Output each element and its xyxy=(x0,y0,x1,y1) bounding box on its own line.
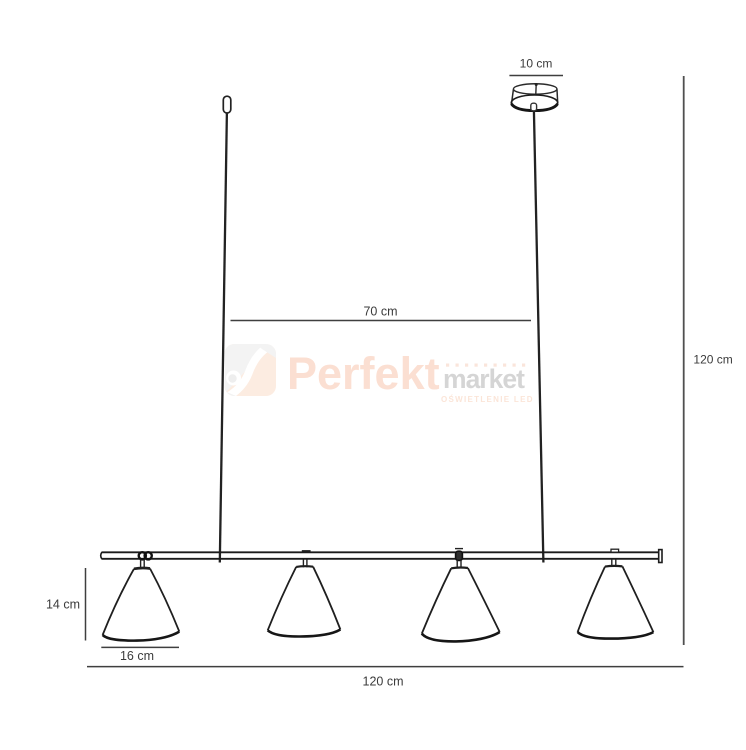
svg-text:16 cm: 16 cm xyxy=(120,649,154,663)
svg-text:70 cm: 70 cm xyxy=(363,305,397,319)
svg-text:market: market xyxy=(443,364,525,394)
svg-text:10 cm: 10 cm xyxy=(520,57,553,71)
svg-text:OŚWIETLENIE LED: OŚWIETLENIE LED xyxy=(441,395,534,404)
svg-text:14 cm: 14 cm xyxy=(46,598,80,612)
svg-text:120 cm: 120 cm xyxy=(693,353,732,367)
svg-text:Perfekt: Perfekt xyxy=(287,348,440,399)
svg-text:120 cm: 120 cm xyxy=(363,675,404,689)
